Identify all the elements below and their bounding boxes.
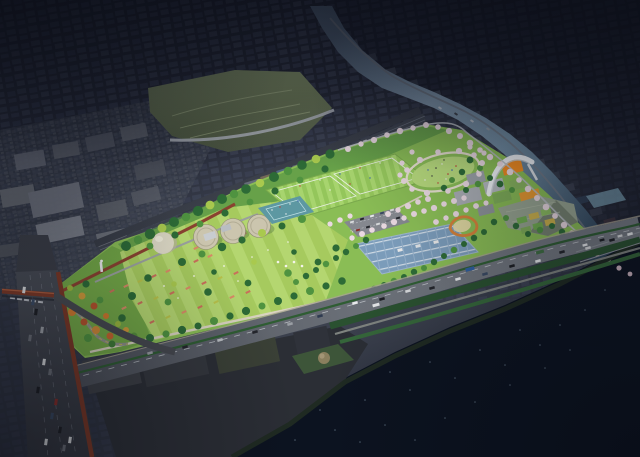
park-aerial-rendering — [0, 0, 640, 457]
screenshot-root — [0, 0, 640, 457]
vignette-bottom-right — [0, 0, 640, 457]
